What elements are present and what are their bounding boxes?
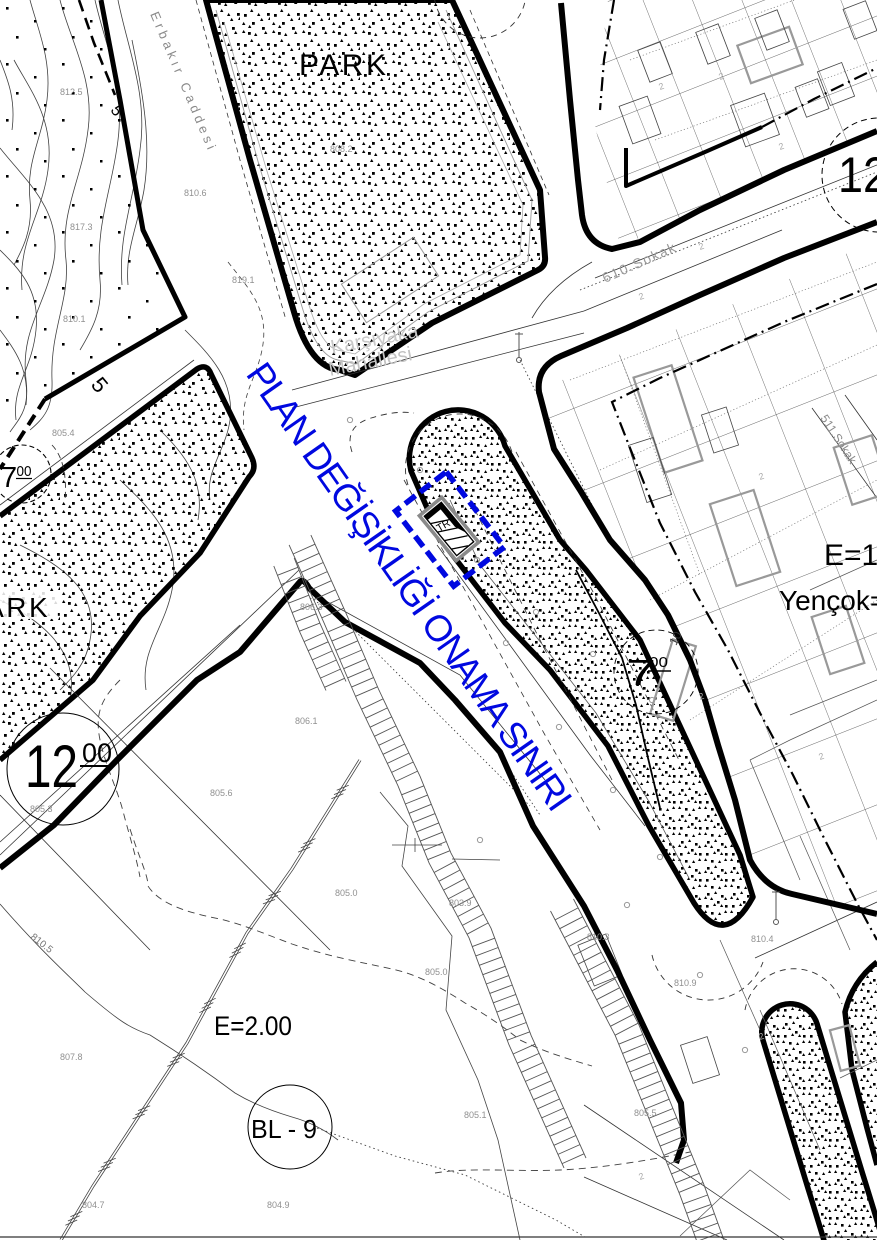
- svg-text:805.3: 805.3: [30, 804, 53, 814]
- svg-text:806.3: 806.3: [300, 602, 323, 612]
- svg-text:810.4: 810.4: [751, 934, 774, 944]
- svg-text:00: 00: [17, 463, 32, 480]
- svg-text:Yençok=6.50: Yençok=6.50: [779, 585, 877, 616]
- svg-text:810.1: 810.1: [63, 314, 86, 324]
- svg-text:00: 00: [649, 654, 668, 671]
- svg-text:805.6: 805.6: [210, 788, 233, 798]
- svg-text:810.6: 810.6: [184, 188, 207, 198]
- svg-text:812.5: 812.5: [60, 87, 83, 97]
- svg-text:810.3: 810.3: [587, 932, 610, 942]
- svg-text:803.9: 803.9: [449, 898, 472, 908]
- svg-text:805.1: 805.1: [464, 1110, 487, 1120]
- svg-text:819.1: 819.1: [232, 275, 255, 285]
- svg-text:807.8: 807.8: [60, 1052, 83, 1062]
- svg-text:817.3: 817.3: [70, 222, 93, 232]
- svg-text:E=1.20: E=1.20: [824, 539, 877, 572]
- svg-text:806.1: 806.1: [295, 716, 318, 726]
- svg-text:BL - 9: BL - 9: [251, 1114, 317, 1144]
- svg-text:12: 12: [838, 147, 877, 203]
- svg-text:00: 00: [82, 738, 112, 768]
- svg-text:808.2: 808.2: [330, 144, 353, 154]
- svg-text:805.0: 805.0: [425, 967, 448, 977]
- svg-text:805.4: 805.4: [52, 428, 75, 438]
- svg-text:12: 12: [25, 733, 78, 800]
- svg-text:804.7: 804.7: [82, 1200, 105, 1210]
- svg-text:E=2.00: E=2.00: [214, 1011, 292, 1041]
- svg-text:7: 7: [1, 462, 17, 494]
- svg-text:PARK: PARK: [0, 592, 50, 623]
- svg-text:810.9: 810.9: [674, 978, 697, 988]
- svg-text:805.5: 805.5: [634, 1108, 657, 1118]
- svg-text:PARK: PARK: [299, 49, 388, 82]
- svg-text:805.0: 805.0: [335, 888, 358, 898]
- svg-text:804.9: 804.9: [267, 1200, 290, 1210]
